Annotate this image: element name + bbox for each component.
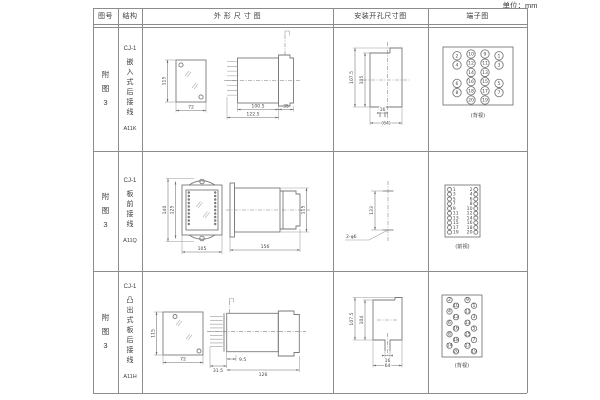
structure-code: A11H xyxy=(123,374,136,380)
header-fig-no: 图号 xyxy=(93,8,118,24)
svg-text:12: 12 xyxy=(453,314,459,320)
svg-text:19: 19 xyxy=(482,98,488,104)
svg-text:7: 7 xyxy=(498,90,501,96)
dim-label: 115 xyxy=(162,77,168,86)
svg-text:4: 4 xyxy=(456,63,459,69)
front-view: 115 72 xyxy=(151,312,204,365)
structure-name: 嵌入式后接线 xyxy=(126,58,134,119)
fig-no-row1: 附图3 xyxy=(93,27,118,151)
model-label: CJ-1 xyxy=(124,46,137,52)
dim-label: 140 xyxy=(162,206,168,215)
dim-label: 122.5 xyxy=(246,112,259,118)
mount-hole xyxy=(199,95,203,99)
header-terminal: 端子图 xyxy=(428,8,527,24)
install-drawing-a11q: 133 2-φ6 xyxy=(333,151,428,271)
svg-text:8: 8 xyxy=(448,331,451,337)
svg-text:14: 14 xyxy=(468,70,474,76)
svg-text:4: 4 xyxy=(448,309,451,315)
side-view: 115 156 xyxy=(226,183,310,252)
svg-text:19: 19 xyxy=(471,348,477,354)
terminal-circles: 1234567891011121314151617181920 xyxy=(448,187,478,236)
svg-text:1: 1 xyxy=(498,53,501,59)
dim-label: 133 xyxy=(369,206,375,215)
dim-label: 35 xyxy=(283,104,289,110)
dim-label: 16 xyxy=(385,358,391,364)
svg-text:13: 13 xyxy=(482,70,488,76)
install-drawing-a11h: 107.5 104 16 64 xyxy=(333,271,428,393)
svg-text:18: 18 xyxy=(468,88,474,94)
dim-label: 115 xyxy=(301,206,307,215)
header-install: 安装开孔尺寸图 xyxy=(333,8,428,24)
outline-drawing-a11h: 115 72 9.5 31.5 126 xyxy=(142,271,333,393)
terminal-diagram-a11q: 1234567891011121314151617181920 (前视) xyxy=(428,151,527,271)
structure-a11h: CJ-1 凸出式板后接线 A11H xyxy=(118,271,142,393)
front-view: 115 72 xyxy=(162,60,207,113)
svg-text:15: 15 xyxy=(465,331,471,337)
dim-label: 72 xyxy=(188,105,194,111)
dim-label: 156 xyxy=(261,244,270,250)
terminal-comb xyxy=(227,62,238,96)
terminal-diagram-a11k: 2109141211314136161558181772019 (背视) xyxy=(428,27,527,151)
svg-text:6: 6 xyxy=(456,81,459,87)
table-border-bottom xyxy=(93,393,527,394)
svg-text:7: 7 xyxy=(473,337,476,343)
view-label: (前视) xyxy=(455,242,469,250)
svg-text:2: 2 xyxy=(448,297,451,303)
dim-label: 100.5 xyxy=(251,104,264,110)
dim-label: 115 xyxy=(151,329,157,338)
svg-text:1: 1 xyxy=(473,303,476,309)
dim-label: 31.5 xyxy=(213,368,223,374)
svg-text:18: 18 xyxy=(453,337,459,343)
side-view: 100.5 35 122.5 xyxy=(224,31,301,120)
holes-label: 2-φ6 xyxy=(346,234,357,240)
svg-text:14: 14 xyxy=(447,343,453,349)
svg-text:5: 5 xyxy=(498,81,501,87)
terminal-circles: 2104126168181420911131351571719 xyxy=(447,297,477,354)
dim-label: 105 xyxy=(198,246,207,252)
svg-text:3: 3 xyxy=(473,314,476,320)
svg-text:6: 6 xyxy=(448,320,451,326)
dim-label: 16 xyxy=(380,107,386,113)
dim-label: 126 xyxy=(259,372,268,378)
structure-code: A11Q xyxy=(123,238,137,244)
svg-text:9: 9 xyxy=(484,52,487,58)
svg-text:15: 15 xyxy=(482,79,488,85)
glass-mark xyxy=(176,320,192,340)
svg-text:19: 19 xyxy=(453,230,459,236)
svg-text:2: 2 xyxy=(456,53,459,59)
svg-text:11: 11 xyxy=(482,61,488,67)
dim-label: 105 xyxy=(359,76,365,85)
svg-text:11: 11 xyxy=(465,309,471,315)
svg-text:16: 16 xyxy=(453,326,459,332)
svg-text:10: 10 xyxy=(453,303,459,309)
svg-text:17: 17 xyxy=(465,343,471,349)
svg-text:16: 16 xyxy=(468,79,474,85)
mount-hole xyxy=(173,315,177,319)
fig-no-row2: 附图3 xyxy=(93,151,118,271)
dim-label: 104 xyxy=(359,316,365,325)
fig-no-row3: 附图3 xyxy=(93,271,118,393)
svg-text:3: 3 xyxy=(498,63,501,69)
svg-text:8: 8 xyxy=(456,90,459,96)
view-label: (背视) xyxy=(455,361,469,369)
svg-text:12: 12 xyxy=(468,61,474,67)
front-view: 140 125 105 xyxy=(162,179,222,255)
install-drawing-a11k: 107.5 105 16 (64) xyxy=(333,27,428,151)
svg-text:9: 9 xyxy=(466,297,469,303)
model-label: CJ-1 xyxy=(124,284,137,290)
structure-a11q: CJ-1 板前接线 A11Q xyxy=(118,151,142,271)
terminal-diagram-a11h: 2104126168181420911131351571719 (背视) xyxy=(428,271,527,393)
dim-label: 107.5 xyxy=(349,71,355,84)
structure-name: 板前接线 xyxy=(126,190,134,231)
col-line-5 xyxy=(527,8,528,393)
outline-drawing-a11q: 140 125 105 115 156 xyxy=(142,151,333,271)
seal-hook xyxy=(230,299,234,303)
svg-text:17: 17 xyxy=(482,88,488,94)
outline-drawing-a11k: 115 72 100.5 35 122.5 xyxy=(142,27,333,151)
mount-hole xyxy=(179,63,183,67)
svg-text:5: 5 xyxy=(473,326,476,332)
svg-text:20: 20 xyxy=(468,98,474,104)
dim-label: 9.5 xyxy=(239,357,246,363)
svg-text:10: 10 xyxy=(468,52,474,58)
dim-label: 125 xyxy=(170,206,176,215)
view-label: (背视) xyxy=(471,111,485,119)
structure-name: 凸出式板后接线 xyxy=(126,296,134,367)
svg-text:20: 20 xyxy=(453,348,459,354)
screw-hole xyxy=(200,179,205,184)
header-structure: 结构 xyxy=(118,8,142,24)
structure-a11k: CJ-1 嵌入式后接线 A11K xyxy=(118,27,142,151)
header-rule-1 xyxy=(93,24,527,25)
mount-hole xyxy=(197,349,201,353)
dim-label: 64 xyxy=(385,363,391,369)
side-view: 9.5 31.5 126 xyxy=(207,299,306,379)
screw-hole xyxy=(200,236,205,241)
structure-code: A11K xyxy=(123,126,136,132)
dim-label: 72 xyxy=(180,357,186,363)
dim-label: (64) xyxy=(381,121,391,127)
svg-text:13: 13 xyxy=(465,320,471,326)
datasheet-page: 单位：mm 图号 结构 外 形 尺 寸 图 安装开孔尺寸图 端子图 附图3 附图… xyxy=(0,0,600,400)
glass-mark xyxy=(196,202,210,219)
seal-hook xyxy=(285,31,290,36)
model-label: CJ-1 xyxy=(124,178,137,184)
glass-mark xyxy=(185,71,198,89)
dim-label: 107.5 xyxy=(349,312,355,325)
terminal-circles: 2109141211314136161558181772019 xyxy=(453,50,503,104)
header-outline: 外 形 尺 寸 图 xyxy=(142,8,333,24)
svg-text:20: 20 xyxy=(467,230,473,236)
